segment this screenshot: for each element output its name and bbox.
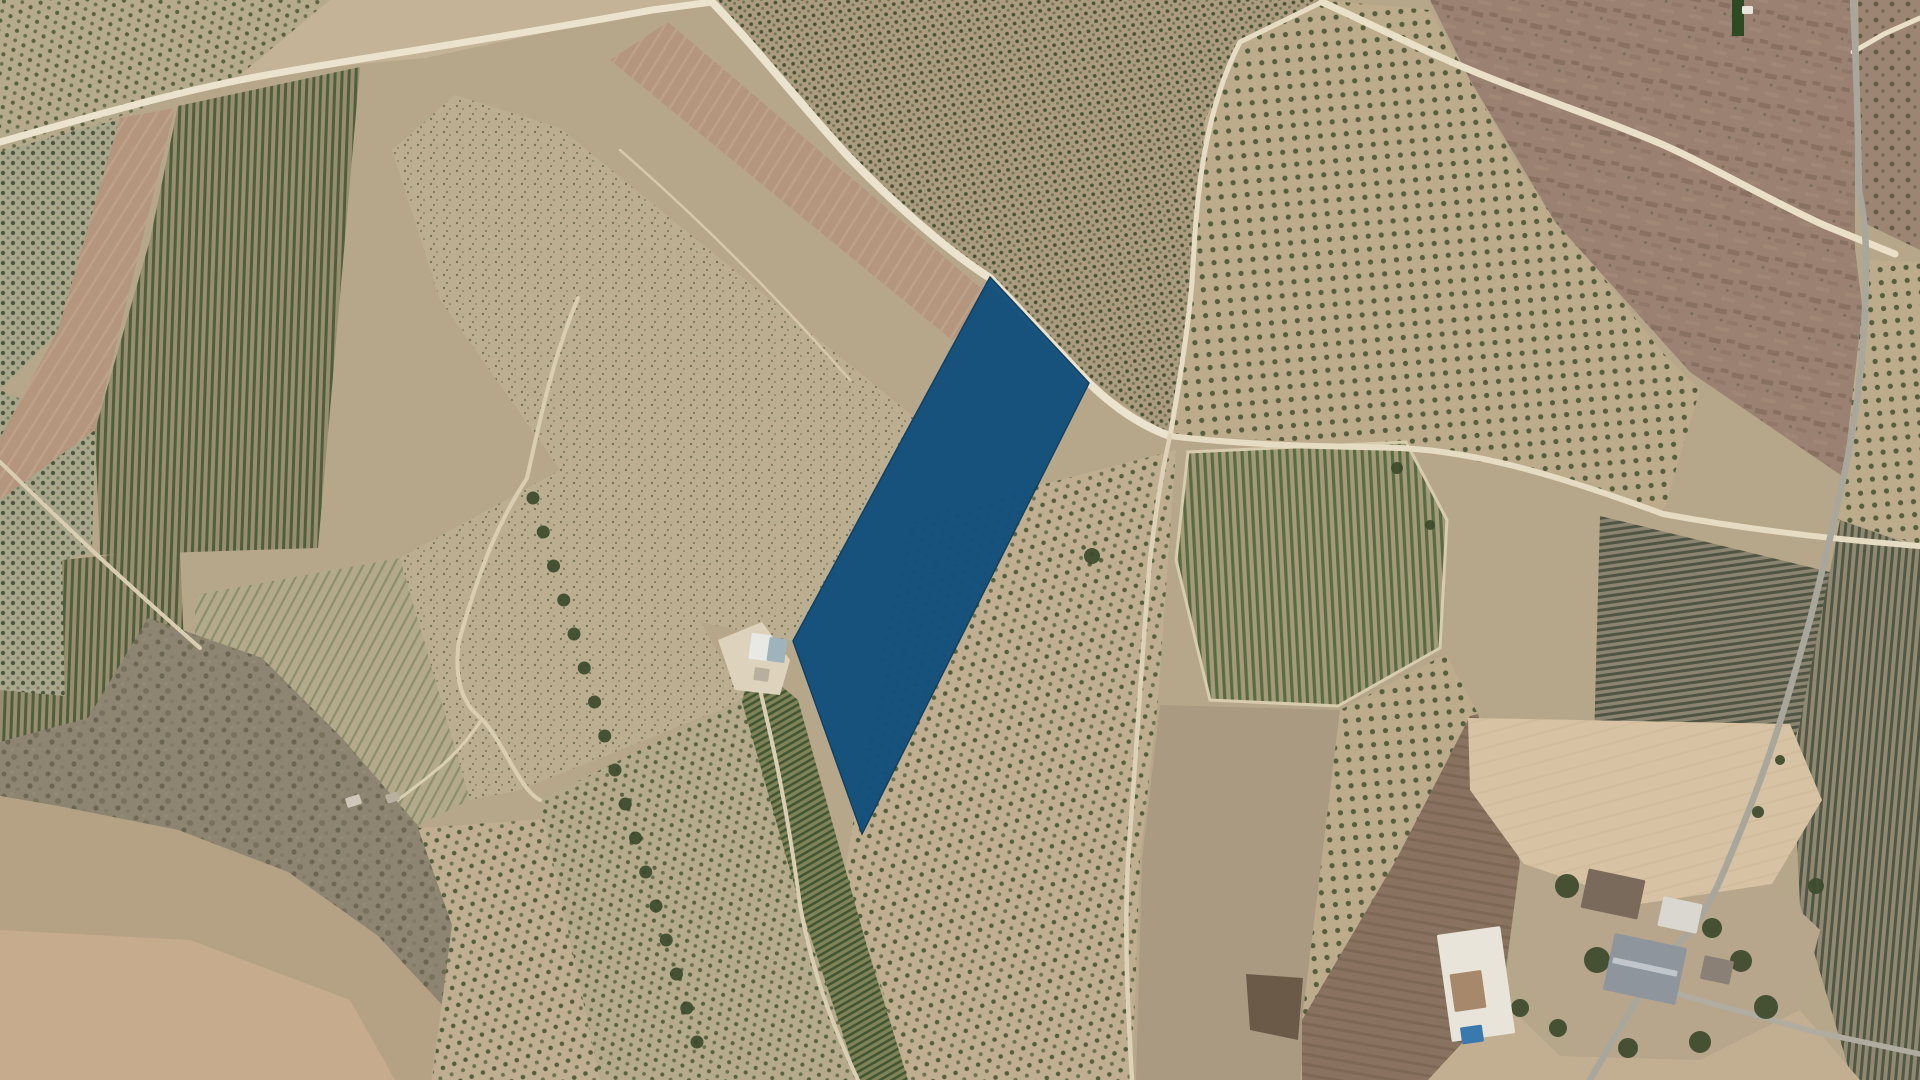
building-pool-house — [1450, 970, 1487, 1012]
field-brown-east-of-grey-road — [1858, 0, 1920, 250]
building-farm-near-parcel-blue — [766, 637, 787, 663]
building-farm-near-parcel-small — [753, 667, 770, 682]
satellite-map[interactable] — [0, 0, 1920, 1080]
building-top-right-white — [1742, 6, 1753, 14]
map-viewport[interactable] — [0, 0, 1920, 1080]
building-swimming-pool — [1460, 1025, 1484, 1045]
field-vineyard-green-round — [1176, 442, 1447, 706]
field-dark-scrub-patch — [1246, 974, 1303, 1040]
field-green-hedge-strip — [1732, 0, 1744, 36]
